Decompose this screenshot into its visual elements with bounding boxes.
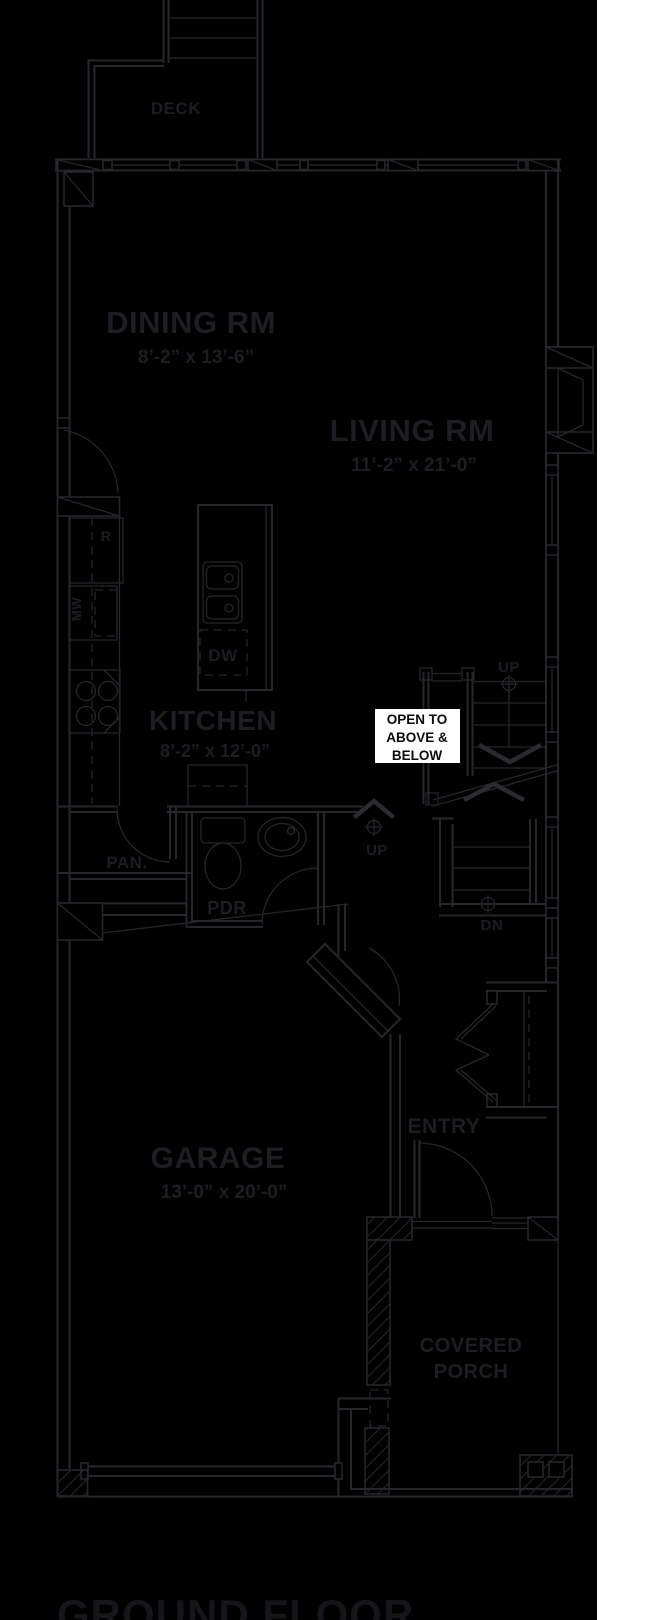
microwave-label: MW bbox=[69, 597, 84, 621]
living-dims: 11’-2” x 21’-0” bbox=[351, 455, 477, 476]
porch-label-line1: COVERED bbox=[420, 1335, 522, 1357]
sheet-title: GROUND FLOOR bbox=[57, 1591, 414, 1620]
garage-dims: 13’-0” x 20’-0” bbox=[161, 1182, 288, 1203]
stairs-up-hall-label: UP bbox=[366, 842, 388, 859]
floor-plan-page: OPEN TO ABOVE & BELOW DECK DINING RM 8’-… bbox=[0, 0, 650, 1620]
living-label: LIVING RM bbox=[330, 413, 495, 448]
fridge-label: R bbox=[101, 528, 112, 544]
powder-label: PDR bbox=[207, 898, 247, 918]
dining-label: DINING RM bbox=[106, 305, 276, 340]
note-line-3: BELOW bbox=[392, 748, 443, 763]
stairs-up-main-label: UP bbox=[498, 659, 520, 676]
note-line-1: OPEN TO bbox=[387, 712, 448, 727]
garage-label: GARAGE bbox=[151, 1142, 286, 1175]
floor-plan-drawing: OPEN TO ABOVE & BELOW DECK DINING RM 8’-… bbox=[0, 0, 650, 1620]
porch-label-line2: PORCH bbox=[434, 1361, 509, 1383]
entry-label: ENTRY bbox=[408, 1115, 481, 1138]
pantry-label: PAN. bbox=[106, 853, 147, 872]
kitchen-dims: 8’-2” x 12’-0” bbox=[160, 741, 270, 761]
deck-label: DECK bbox=[151, 99, 201, 118]
dishwasher-label: DW bbox=[208, 646, 238, 665]
dining-dims: 8’-2” x 13’-6” bbox=[138, 347, 254, 368]
open-to-above-below-note: OPEN TO ABOVE & BELOW bbox=[375, 709, 460, 763]
note-line-2: ABOVE & bbox=[386, 730, 448, 745]
kitchen-label: KITCHEN bbox=[149, 705, 277, 736]
stairs-down-label: DN bbox=[481, 917, 504, 934]
